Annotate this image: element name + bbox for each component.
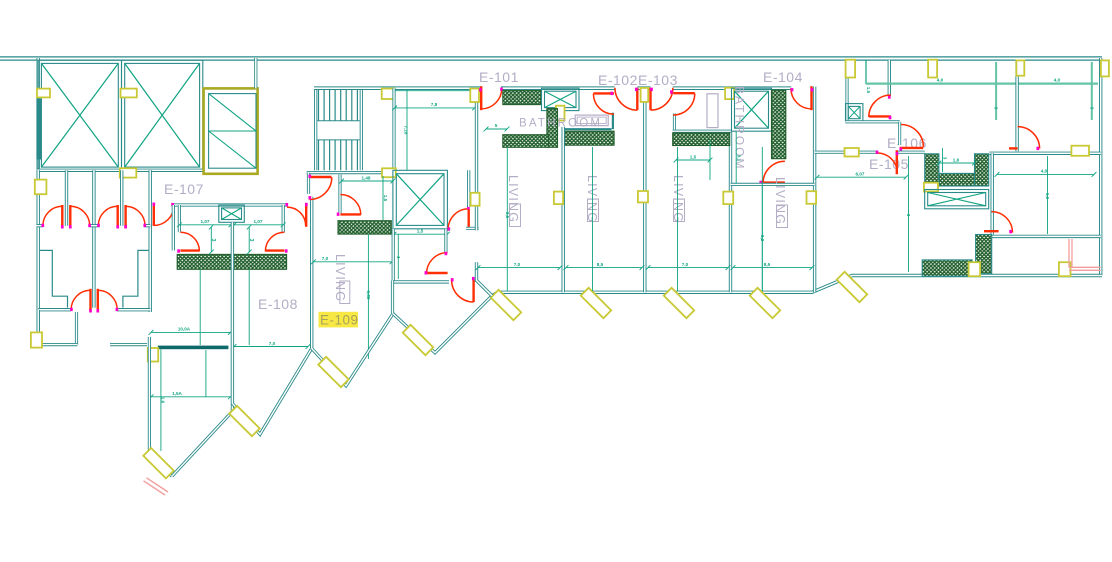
svg-text:E-108: E-108 [258,296,298,312]
svg-text:E-109: E-109 [320,313,359,328]
svg-text:1,5: 1,5 [417,229,424,234]
svg-text:7,0: 7,0 [514,262,521,267]
svg-text:3,1: 3,1 [736,155,741,162]
svg-text:3: 3 [994,107,999,110]
svg-text:4,0: 4,0 [1041,169,1048,174]
svg-text:3: 3 [906,214,911,217]
svg-text:3: 3 [1089,107,1094,110]
svg-text:1,5A: 1,5A [172,391,182,396]
svg-text:3: 3 [943,157,948,160]
svg-text:1,5: 1,5 [1045,193,1050,200]
svg-text:6,88: 6,88 [366,291,371,300]
svg-text:1,48: 1,48 [362,175,371,180]
svg-text:5: 5 [495,123,498,128]
svg-text:8,5: 8,5 [597,262,604,267]
svg-text:1,07: 1,07 [254,219,263,224]
svg-text:E-107: E-107 [164,181,204,197]
svg-text:1,07: 1,07 [201,219,210,224]
svg-text:3: 3 [210,239,216,242]
svg-text:LIVING: LIVING [773,177,787,225]
svg-text:E-104: E-104 [763,69,803,85]
svg-text:6,07: 6,07 [856,171,865,176]
svg-text:4,0: 4,0 [1054,78,1061,83]
svg-text:7,8: 7,8 [431,102,438,107]
svg-text:E-101: E-101 [479,69,519,85]
svg-text:1,6: 1,6 [953,157,960,162]
svg-text:7,0: 7,0 [682,262,689,267]
svg-text:4: 4 [396,256,401,259]
svg-text:1,5: 1,5 [690,154,697,159]
svg-text:1,5: 1,5 [383,195,388,202]
svg-text:10,0A: 10,0A [178,327,191,332]
svg-text:7,0: 7,0 [322,256,329,261]
svg-text:7,18: 7,18 [404,126,409,135]
svg-text:E-102: E-102 [598,72,638,88]
svg-text:7,0: 7,0 [269,341,276,346]
svg-text:1,5: 1,5 [866,87,871,94]
svg-text:3: 3 [248,239,254,242]
svg-text:E-105: E-105 [869,156,909,172]
svg-text:LIVING: LIVING [506,175,520,223]
svg-text:1,6: 1,6 [161,397,166,404]
svg-text:8,5: 8,5 [764,262,771,267]
svg-text:E-103: E-103 [638,72,678,88]
